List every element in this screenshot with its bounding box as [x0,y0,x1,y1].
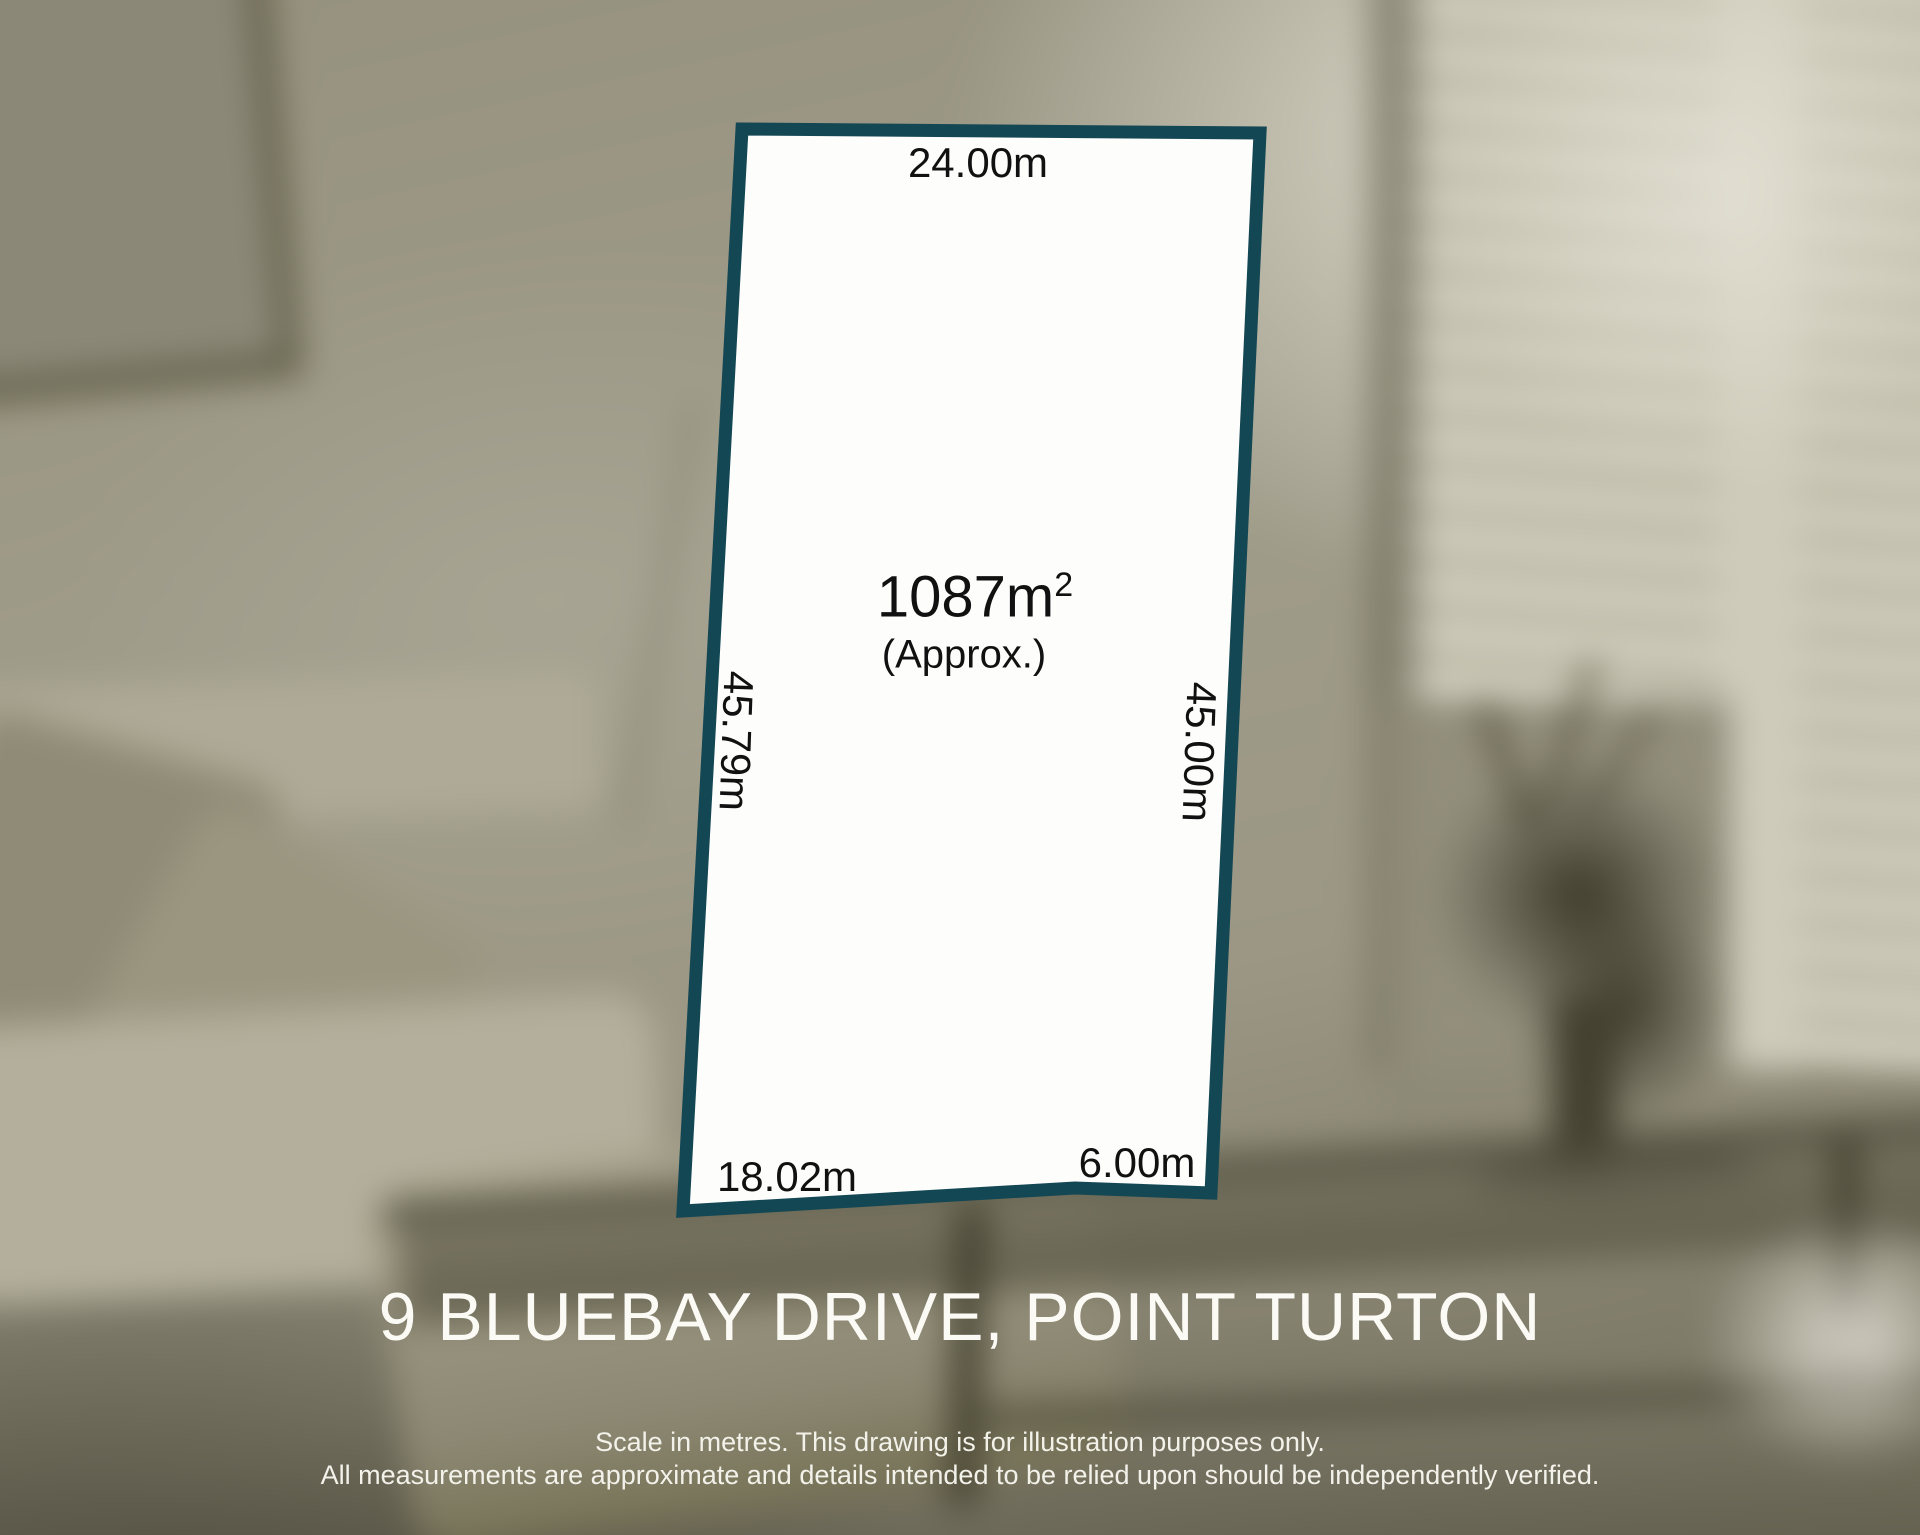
dimension-bottom-right: 6.00m [1079,1139,1196,1187]
lot-area: 1087m2 [877,564,1073,631]
lot-area-exponent: 2 [1054,566,1073,604]
lot-area-qualifier: (Approx.) [882,633,1047,678]
disclaimer-line-1: Scale in metres. This drawing is for ill… [0,1426,1920,1459]
lot-area-value: 1087m [877,565,1054,630]
flyer-canvas: 24.00m 45.79m 45.00m 18.02m 6.00m 1087m2… [0,0,1920,1535]
dimension-right: 45.00m [1173,681,1226,823]
dimension-bottom-left: 18.02m [717,1153,857,1201]
property-address: 9 BLUEBAY DRIVE, POINT TURTON [0,1278,1920,1356]
dimension-left: 45.79m [710,670,763,812]
dimension-top: 24.00m [908,139,1048,187]
disclaimer-line-2: All measurements are approximate and det… [0,1459,1920,1492]
disclaimer-text: Scale in metres. This drawing is for ill… [0,1426,1920,1492]
